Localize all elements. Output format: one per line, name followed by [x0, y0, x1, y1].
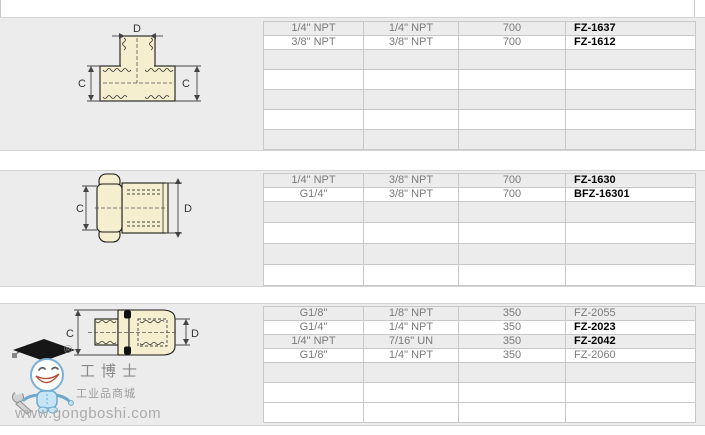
product-spec-page: D C C 1/4" NPT1/4" NPT700FZ-16373/8" NPT… [0, 0, 705, 435]
dimension-label-c: C [76, 203, 84, 215]
spec-cell: 1/4" NPT [364, 321, 459, 335]
table-row [264, 383, 696, 403]
spec-cell [459, 130, 566, 150]
spec-cell: 700 [459, 188, 566, 202]
dimension-label-d: D [191, 328, 199, 340]
registered-mark: ® [64, 344, 72, 356]
table-row [264, 90, 696, 110]
spec-cell [264, 202, 364, 223]
spec-cell [264, 110, 364, 130]
spec-cell: 1/4" NPT [364, 22, 459, 36]
spec-cell [364, 223, 459, 244]
hex-bushing-drawing: C D [75, 173, 205, 251]
spec-cell [459, 244, 566, 265]
border-fragment-left [0, 0, 1, 17]
table-row: G1/8"1/4" NPT350FZ-2060 [264, 349, 696, 363]
spec-cell [364, 90, 459, 110]
spec-cell [264, 403, 364, 423]
dimension-label-c: C [78, 78, 86, 90]
spec-cell [459, 110, 566, 130]
spec-cell [566, 90, 696, 110]
table-row: 1/4" NPT1/4" NPT700FZ-1637 [264, 22, 696, 36]
spec-cell: 350 [459, 307, 566, 321]
spec-cell [264, 70, 364, 90]
spec-cell: 3/8" NPT [364, 188, 459, 202]
spec-cell: G1/8" [264, 307, 364, 321]
dimension-label-c: C [182, 78, 190, 90]
spec-cell [364, 50, 459, 70]
spec-cell [459, 265, 566, 286]
spec-cell [566, 265, 696, 286]
part-number-cell: FZ-2023 [566, 321, 696, 335]
spec-cell [264, 90, 364, 110]
spec-cell: 1/4" NPT [364, 349, 459, 363]
spec-cell [264, 130, 364, 150]
spec-cell [459, 383, 566, 403]
spec-cell: 700 [459, 36, 566, 50]
spec-cell: G1/4" [264, 188, 364, 202]
spec-cell: 700 [459, 22, 566, 36]
spec-cell [566, 223, 696, 244]
spec-cell [364, 110, 459, 130]
spec-cell [264, 265, 364, 286]
spec-cell: 700 [459, 174, 566, 188]
spec-cell: 3/8" NPT [264, 36, 364, 50]
spec-cell [264, 223, 364, 244]
spec-cell: G1/4" [264, 321, 364, 335]
tee-fitting-drawing: D C C [75, 21, 205, 126]
part-number-cell: FZ-2055 [566, 307, 696, 321]
spec-cell: 1/4" NPT [264, 174, 364, 188]
table-row [264, 70, 696, 90]
border-fragment-right [694, 0, 695, 17]
part-number-cell: FZ-1637 [566, 22, 696, 36]
table-row [264, 50, 696, 70]
table-row [264, 403, 696, 423]
spec-cell [459, 202, 566, 223]
spec-cell: 1/8" NPT [364, 307, 459, 321]
spec-cell [566, 244, 696, 265]
table-row: 1/4" NPT7/16" UN350FZ-2042 [264, 335, 696, 349]
spec-cell [364, 265, 459, 286]
spec-cell: 7/16" UN [364, 335, 459, 349]
part-number-cell: FZ-2042 [566, 335, 696, 349]
table-row: 1/4" NPT3/8" NPT700FZ-1630 [264, 174, 696, 188]
spec-cell: 350 [459, 349, 566, 363]
spec-cell [566, 383, 696, 403]
spec-cell [566, 50, 696, 70]
part-number-cell: FZ-1630 [566, 174, 696, 188]
spec-cell [364, 403, 459, 423]
spec-cell [364, 383, 459, 403]
spec-cell [566, 202, 696, 223]
table-row [264, 244, 696, 265]
spec-cell [459, 90, 566, 110]
fitting-section-bushing: C D 1/4" NPT3/8" NPT700FZ-1630G1/4"3/8" … [0, 170, 705, 287]
spec-cell [566, 130, 696, 150]
table-row: G1/4"1/4" NPT350FZ-2023 [264, 321, 696, 335]
spec-cell: 350 [459, 335, 566, 349]
spec-cell: 1/4" NPT [264, 22, 364, 36]
spec-cell [459, 223, 566, 244]
brand-name: 工博士 [80, 360, 143, 381]
part-number-cell: FZ-1612 [566, 36, 696, 50]
spec-cell [566, 403, 696, 423]
brand-url: www.gongboshi.com [15, 405, 161, 422]
spec-cell: 3/8" NPT [364, 36, 459, 50]
spec-cell [459, 70, 566, 90]
spec-cell [459, 363, 566, 383]
spec-cell: 350 [459, 321, 566, 335]
spec-table: 1/4" NPT3/8" NPT700FZ-1630G1/4"3/8" NPT7… [263, 173, 696, 286]
spec-cell: G1/8" [264, 349, 364, 363]
spec-cell [264, 363, 364, 383]
table-row: 3/8" NPT3/8" NPT700FZ-1612 [264, 36, 696, 50]
spec-cell [264, 244, 364, 265]
table-row [264, 110, 696, 130]
spec-cell [566, 110, 696, 130]
part-number-cell: FZ-2060 [566, 349, 696, 363]
spec-cell [364, 363, 459, 383]
spec-cell [364, 244, 459, 265]
spec-cell [364, 202, 459, 223]
table-row [264, 130, 696, 150]
spec-cell: 1/4" NPT [264, 335, 364, 349]
spec-table: G1/8"1/8" NPT350FZ-2055G1/4"1/4" NPT350F… [263, 306, 696, 423]
spec-cell: 3/8" NPT [364, 174, 459, 188]
spec-cell [459, 403, 566, 423]
part-number-cell: BFZ-16301 [566, 188, 696, 202]
spec-cell [364, 130, 459, 150]
table-row [264, 265, 696, 286]
table-row: G1/4"3/8" NPT700BFZ-16301 [264, 188, 696, 202]
table-row [264, 202, 696, 223]
table-row [264, 363, 696, 383]
spec-table: 1/4" NPT1/4" NPT700FZ-16373/8" NPT3/8" N… [263, 21, 696, 150]
brand-subtitle: 工业品商城 [76, 385, 136, 401]
dimension-label-d: D [184, 203, 192, 215]
spec-cell [264, 50, 364, 70]
dimension-label-d: D [133, 23, 141, 35]
spec-cell [566, 363, 696, 383]
table-row: G1/8"1/8" NPT350FZ-2055 [264, 307, 696, 321]
table-row [264, 223, 696, 244]
spec-cell [264, 383, 364, 403]
fitting-section-tee: D C C 1/4" NPT1/4" NPT700FZ-16373/8" NPT… [0, 17, 705, 151]
spec-cell [459, 50, 566, 70]
spec-cell [364, 70, 459, 90]
spec-cell [566, 70, 696, 90]
